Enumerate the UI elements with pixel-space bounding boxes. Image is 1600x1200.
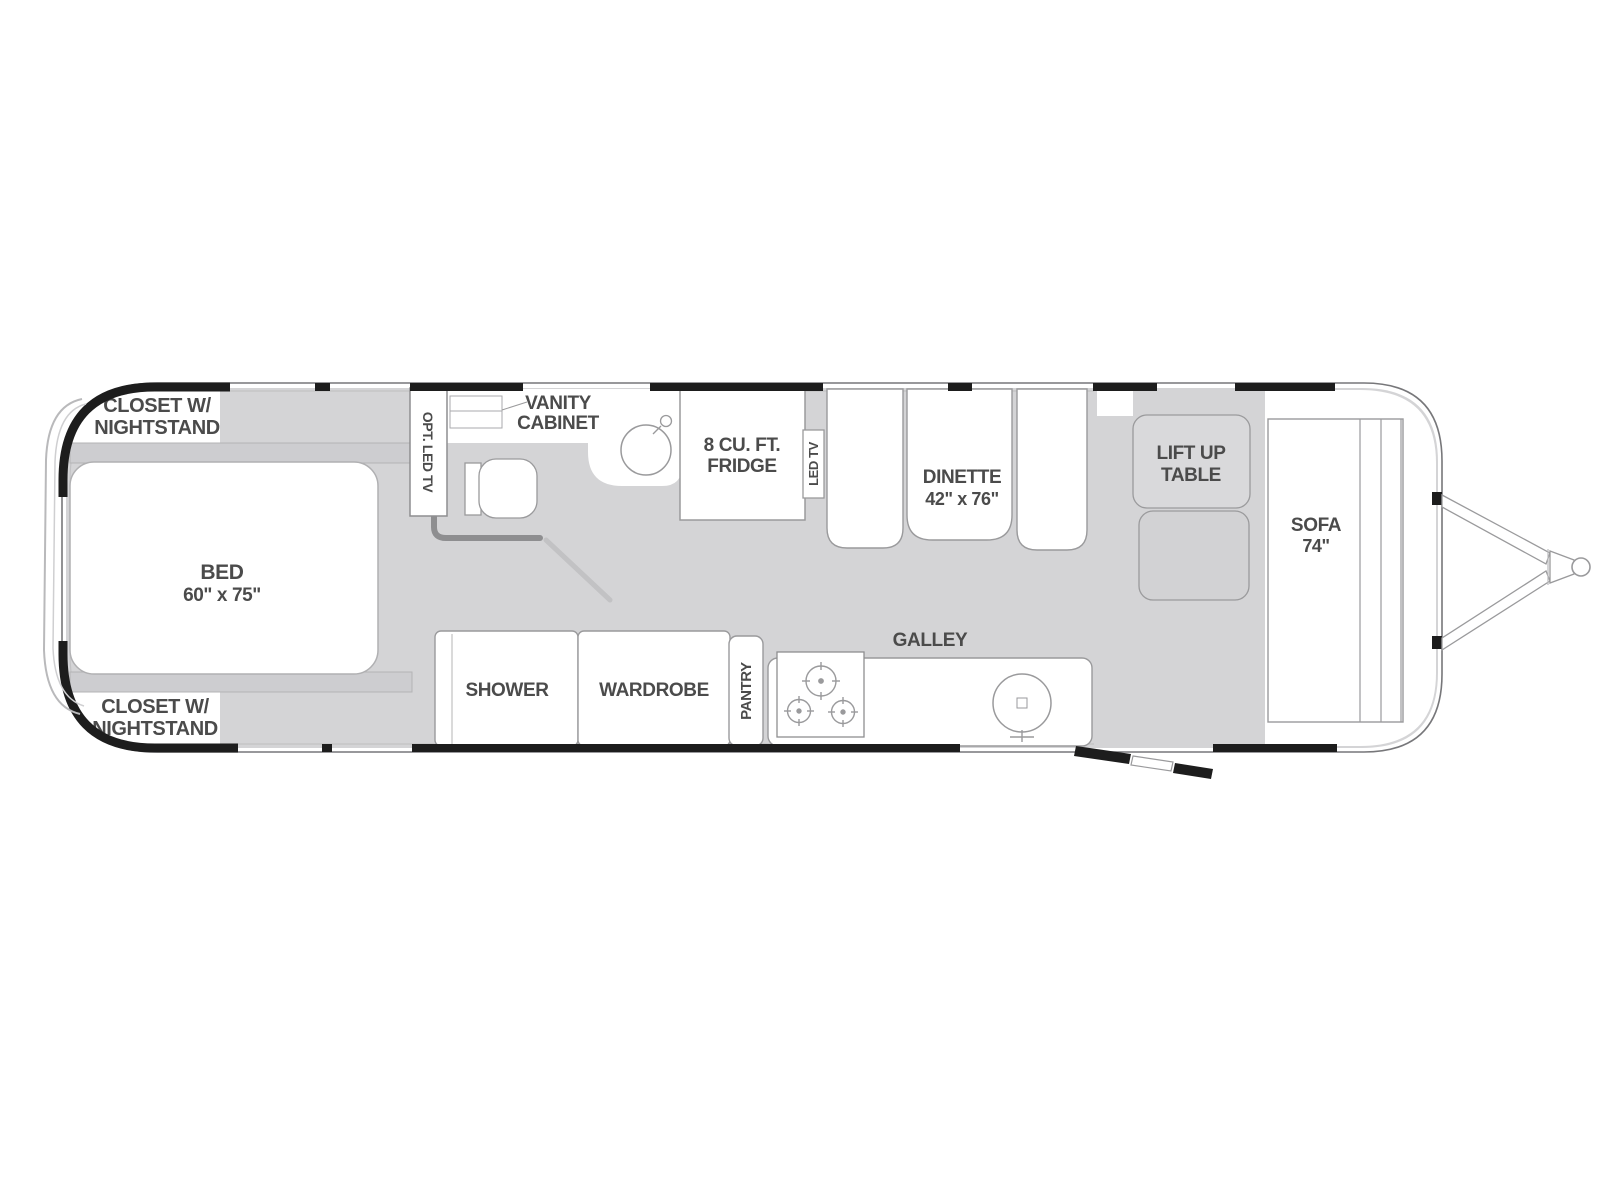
bath-faucet [661, 416, 672, 427]
lift-table-area [1094, 388, 1265, 746]
closet-rear-label: CLOSET W/ [101, 696, 209, 718]
bed-size-label: 60" x 75" [183, 585, 261, 606]
fridge-label-2: FRIDGE [707, 456, 776, 477]
closet-front-label: CLOSET W/ [103, 395, 211, 417]
entry-door-panel-1 [1074, 746, 1131, 764]
closet-front-label-2: NIGHTSTAND [94, 417, 220, 439]
vanity-counter-2 [450, 411, 502, 428]
hitch [1442, 495, 1590, 650]
wardrobe-label: WARDROBE [599, 680, 709, 701]
wall-tick-right-upper [1432, 492, 1442, 505]
closet-front [70, 443, 412, 463]
entry-door-panel-3 [1173, 763, 1213, 779]
hitch-coupler [1550, 551, 1574, 583]
bed-label: BED [200, 561, 243, 584]
lift-table-seat [1139, 511, 1249, 600]
entry-door [1074, 746, 1213, 779]
pantry-label: PANTRY [738, 662, 755, 720]
sofa-size-label: 74" [1302, 536, 1329, 556]
lift-table-notch [1097, 389, 1133, 416]
hitch-tube-upper [1442, 495, 1550, 564]
opt-led-tv-label: OPT. LED TV [420, 412, 436, 493]
dinette-table [907, 389, 1012, 540]
floorplan-page: CLOSET W/ NIGHTSTAND CLOSET W/ NIGHTSTAN… [0, 0, 1600, 1200]
vanity-label: VANITY [525, 393, 592, 414]
wall-tick-right-lower [1432, 636, 1442, 649]
galley-sink [993, 674, 1051, 732]
shower-label: SHOWER [465, 680, 549, 701]
fridge-label: 8 CU. FT. [704, 435, 781, 456]
sofa-area [1265, 390, 1436, 746]
toilet-bowl [479, 459, 537, 518]
hitch-tube-lower [1442, 571, 1550, 650]
closet-rear [70, 672, 412, 692]
galley-label: GALLEY [893, 630, 968, 651]
vanity-label-2: CABINET [517, 413, 599, 434]
dinette-bench-left [827, 389, 903, 548]
lift-table-label: LIFT UP [1157, 443, 1227, 464]
sofa [1268, 419, 1403, 722]
bath-sink [621, 425, 671, 475]
dinette-label: DINETTE [923, 467, 1001, 488]
dinette-bench-right [1017, 389, 1087, 550]
vanity-counter [450, 396, 502, 411]
entry-door-panel-2 [1131, 756, 1173, 771]
galley [768, 652, 1092, 746]
dinette-size-label: 42" x 76" [925, 489, 999, 509]
sofa-label: SOFA [1291, 515, 1342, 536]
lift-table-label-2: TABLE [1161, 465, 1221, 486]
floorplan-drawing: CLOSET W/ NIGHTSTAND CLOSET W/ NIGHTSTAN… [0, 0, 1600, 1200]
led-tv-label: LED TV [806, 441, 821, 486]
hitch-ball-ring [1572, 558, 1590, 576]
